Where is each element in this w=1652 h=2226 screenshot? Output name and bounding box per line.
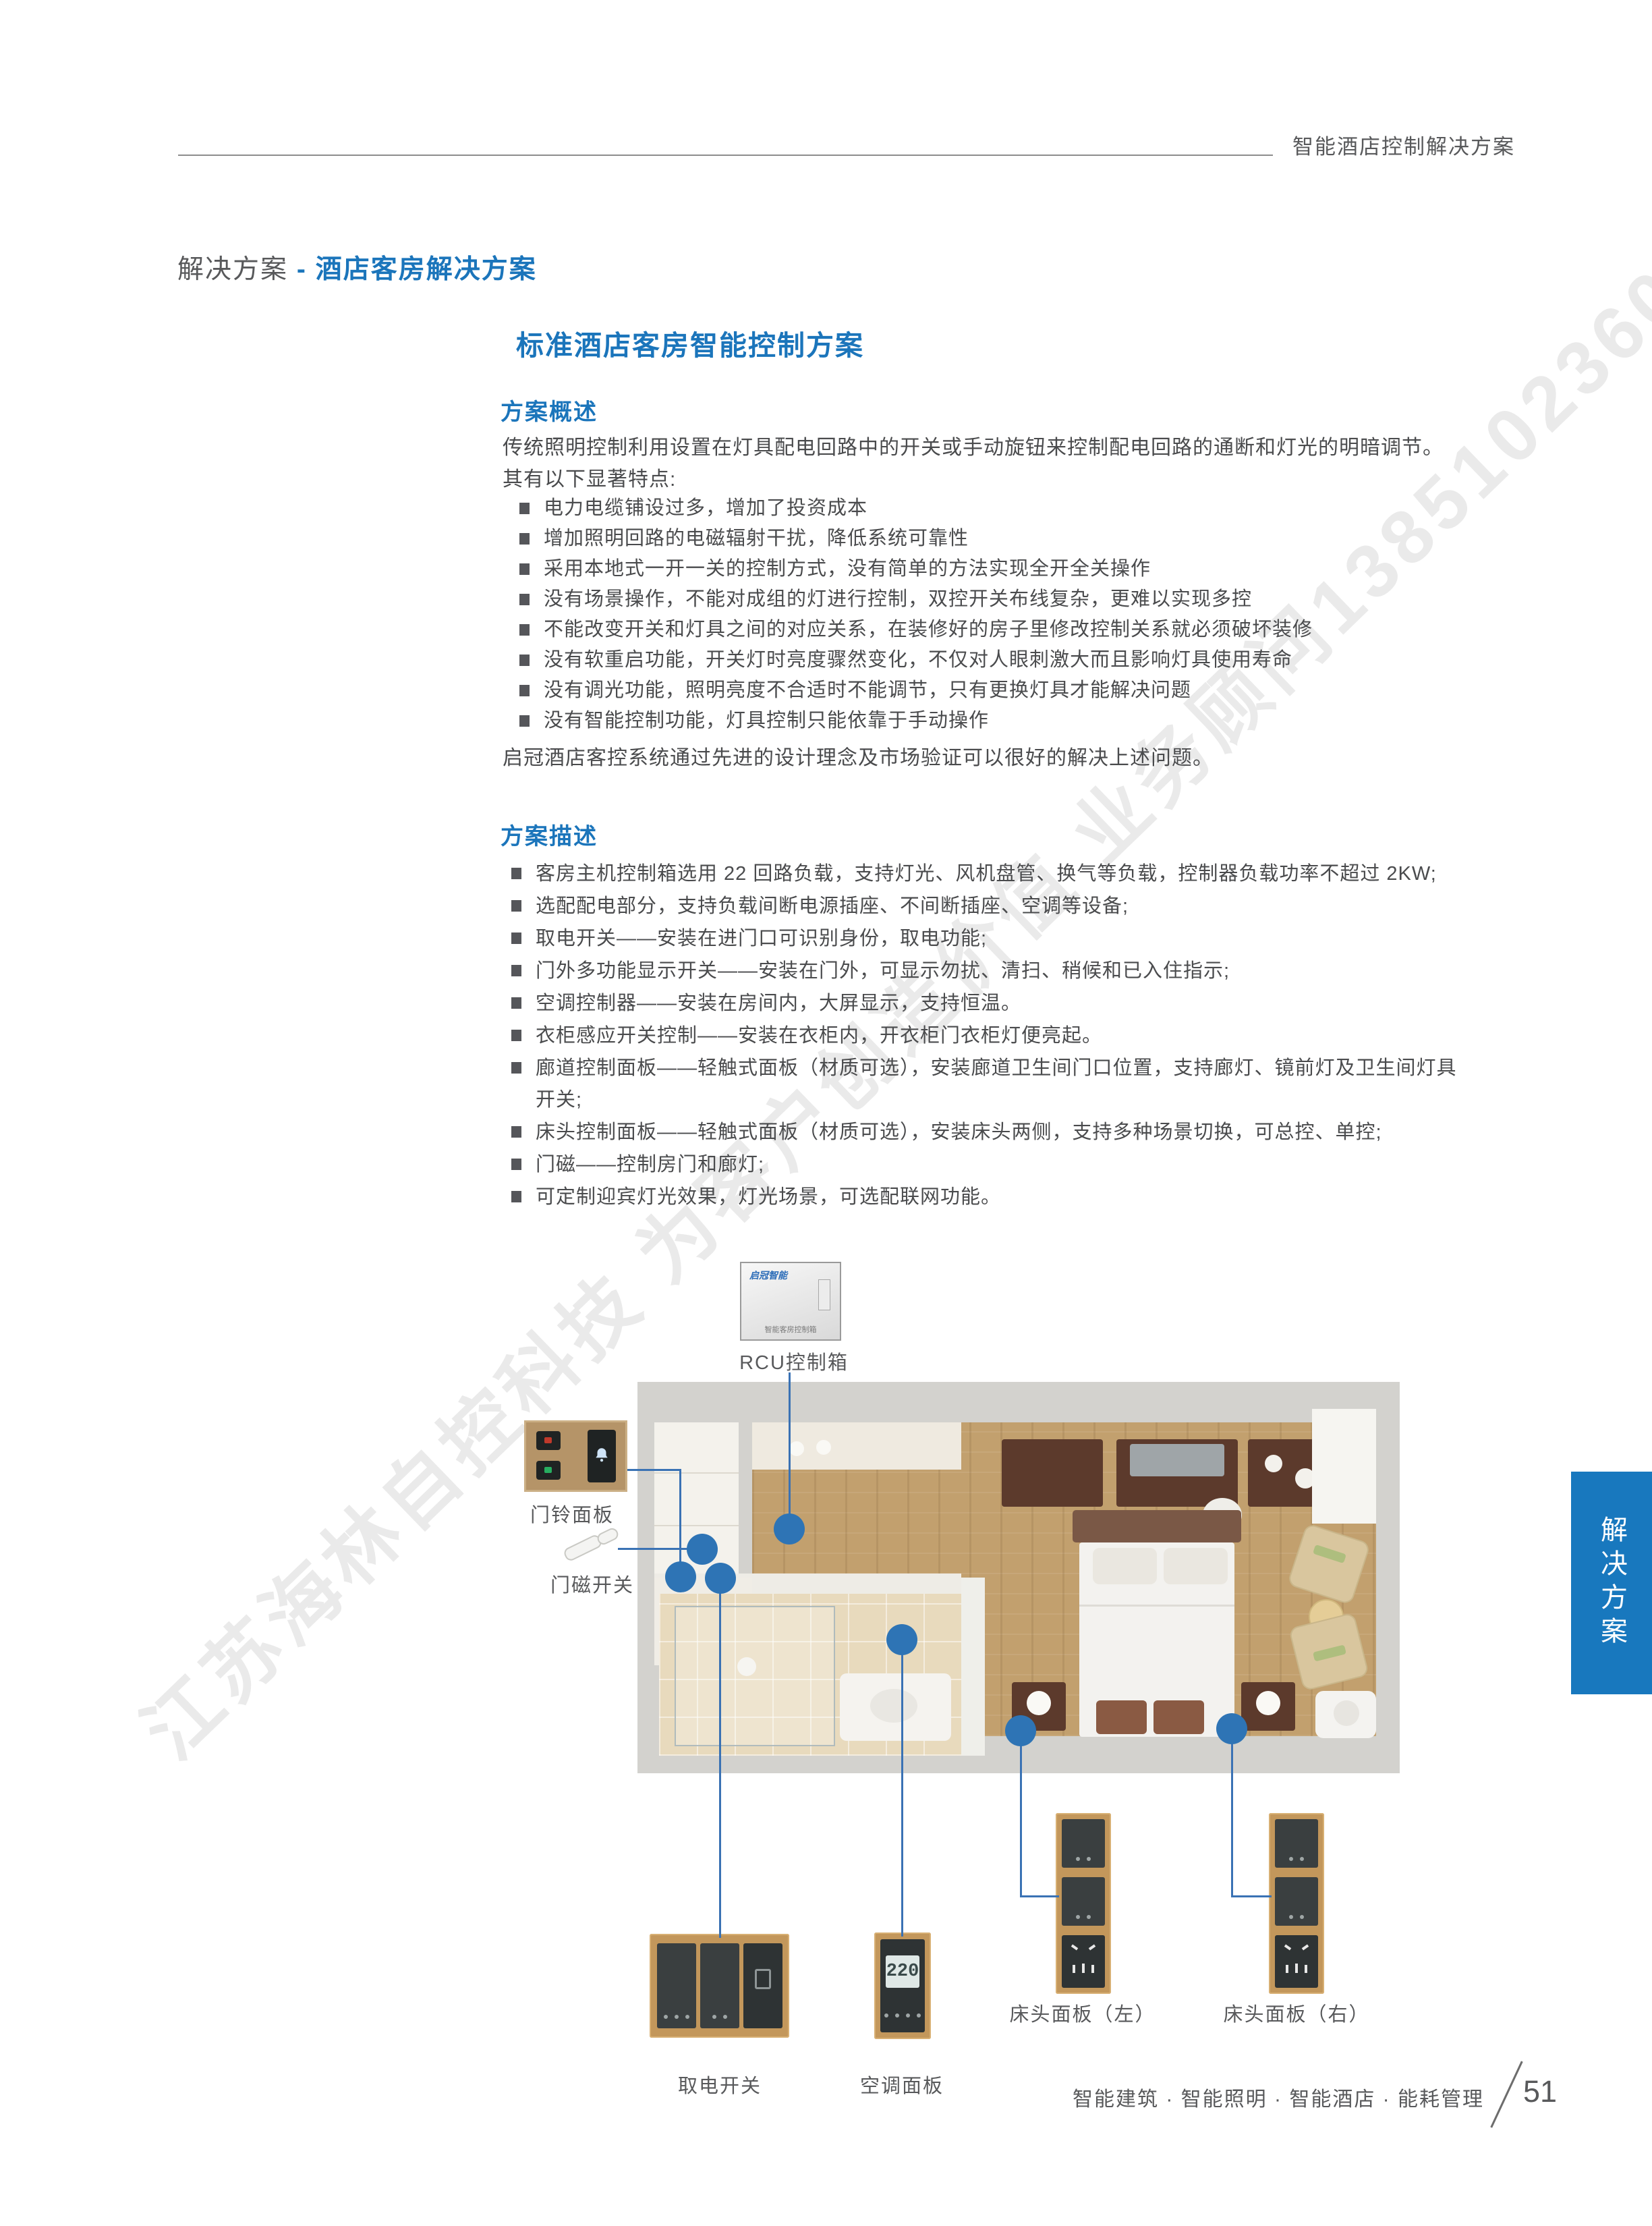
list-item-text: 床头控制面板——轻触式面板（材质可选），安装床头两侧，支持多种场景切换，可总控、… bbox=[536, 1121, 1382, 1143]
list-item-text: 取电开关——安装在进门口可识别身份，取电功能; bbox=[536, 928, 987, 949]
list-item-text: 没有智能控制功能，灯具控制只能依靠于手动操作 bbox=[544, 710, 989, 731]
overview-heading: 方案概述 bbox=[501, 393, 598, 426]
chapter-tab-solutions: 解决方案 bbox=[1571, 1472, 1652, 1694]
connector-bedside-left-v bbox=[1020, 1731, 1022, 1897]
bullet-square-icon bbox=[519, 624, 530, 636]
breadcrumb-prefix: 解决方案 bbox=[177, 255, 288, 284]
connector-bedside-right-v bbox=[1231, 1729, 1233, 1897]
overview-intro: 传统照明控制利用设置在灯具配电回路中的开关或手动旋钮来控制配电回路的通断和灯光的… bbox=[503, 432, 1504, 495]
breadcrumb-current: 酒店客房解决方案 bbox=[316, 255, 537, 284]
corner-vanity-basin bbox=[1334, 1700, 1359, 1726]
shower-enclosure bbox=[675, 1606, 835, 1746]
counter-sink bbox=[789, 1441, 804, 1456]
footer-slash-divider bbox=[1490, 2061, 1522, 2127]
list-item-text: 不能改变开关和灯具之间的对应关系，在装修好的房子里修改控制关系就必须破坏装修 bbox=[544, 619, 1313, 640]
foot-bench-cushion bbox=[1096, 1700, 1147, 1734]
list-item: 不能改变开关和灯具之间的对应关系，在装修好的房子里修改控制关系就必须破坏装修 bbox=[518, 619, 1489, 640]
power-switch-module bbox=[657, 1943, 696, 2028]
list-item-text: 廊道控制面板——轻触式面板（材质可选），安装廊道卫生间门口位置，支持廊灯、镜前灯… bbox=[536, 1057, 1457, 1111]
list-item: 客房主机控制箱选用 22 回路负载，支持灯光、风机盘管、换气等负载，控制器负载功… bbox=[510, 858, 1468, 890]
rcu-latch-icon bbox=[818, 1279, 830, 1310]
closet-shelf-line bbox=[654, 1472, 739, 1474]
bullet-square-icon bbox=[519, 533, 530, 545]
tv-screen bbox=[1130, 1444, 1224, 1476]
list-item-text: 衣柜感应开关控制——安装在衣柜内，开衣柜门衣柜灯便亮起。 bbox=[536, 1025, 1102, 1047]
list-item: 没有软重启功能，开关灯时亮度骤然变化，不仅对人眼刺激大而且影响灯具使用寿命 bbox=[518, 650, 1489, 671]
list-item-text: 电力电缆铺设过多，增加了投资成本 bbox=[544, 497, 867, 519]
bedside-socket-module bbox=[1062, 1935, 1105, 1988]
doorbell-mur-module bbox=[536, 1461, 561, 1480]
list-item: 没有场景操作，不能对成组的灯进行控制，双控开关布线复杂，更难以实现多控 bbox=[518, 589, 1489, 610]
key-card-module bbox=[743, 1943, 782, 2028]
rcu-label: RCU控制箱 bbox=[727, 1347, 861, 1375]
marker-dot-ac bbox=[886, 1624, 917, 1655]
doorbell-dnd-module bbox=[536, 1431, 561, 1450]
bullet-square-icon bbox=[511, 1191, 521, 1202]
header-rule bbox=[178, 155, 1273, 156]
connector-doorbell-v bbox=[679, 1469, 681, 1577]
list-item-text: 采用本地式一开一关的控制方式，没有简单的方法实现全开全关操作 bbox=[544, 558, 1151, 580]
list-item-text: 增加照明回路的电磁辐射干扰，降低系统可靠性 bbox=[544, 528, 969, 549]
footer-slogan: 智能建筑 · 智能照明 · 智能酒店 · 能耗管理 bbox=[938, 2082, 1484, 2112]
connector-rcu bbox=[789, 1372, 791, 1529]
bullet-square-icon bbox=[519, 715, 530, 727]
bedside-panel-left-image bbox=[1056, 1813, 1111, 1994]
list-item-text: 没有调光功能，照明亮度不合适时不能调节，只有更换灯具才能解决问题 bbox=[544, 679, 1191, 701]
list-item-text: 选配配电部分，支持负载间断电源插座、不间断插座、空调等设备; bbox=[536, 895, 1129, 917]
power-switch-panel-image bbox=[650, 1934, 789, 2038]
marker-dot-bedside-right bbox=[1216, 1713, 1247, 1744]
doorbell-panel-image bbox=[524, 1420, 627, 1492]
bullet-square-icon bbox=[519, 503, 530, 514]
overview-intro-line1: 传统照明控制利用设置在灯具配电回路中的开关或手动旋钮来控制配电回路的通断和灯光的… bbox=[503, 432, 1504, 464]
bullet-square-icon bbox=[511, 997, 521, 1009]
vanity-basin bbox=[870, 1689, 917, 1723]
ac-lcd-display: 220 bbox=[886, 1955, 919, 1988]
list-item: 没有智能控制功能，灯具控制只能依靠于手动操作 bbox=[518, 711, 1489, 731]
connector-bedside-left-h bbox=[1020, 1895, 1059, 1897]
kitchenette-counter bbox=[752, 1422, 961, 1470]
partition-wall bbox=[961, 1578, 985, 1756]
room-floor-plan bbox=[637, 1382, 1400, 1773]
rcu-control-box-image: 启冠智能 智能客房控制箱 bbox=[740, 1262, 841, 1341]
bedside-socket-module bbox=[1275, 1935, 1318, 1988]
overview-intro-line2: 其有以下显著特点: bbox=[503, 464, 1504, 495]
pillow bbox=[1164, 1548, 1228, 1584]
list-item: 选配配电部分，支持负载间断电源插座、不间断插座、空调等设备; bbox=[510, 891, 1468, 922]
power-switch-module bbox=[700, 1943, 739, 2028]
breadcrumb: 解决方案 - 酒店客房解决方案 bbox=[177, 248, 537, 286]
pillow bbox=[1093, 1548, 1157, 1584]
list-item: 廊道控制面板——轻触式面板（材质可选），安装廊道卫生间门口位置，支持廊灯、镜前灯… bbox=[510, 1053, 1468, 1116]
connector-ac-panel bbox=[901, 1640, 903, 1937]
shower-drain bbox=[737, 1657, 756, 1676]
bedside-switch-module bbox=[1062, 1819, 1105, 1868]
table-dish bbox=[1265, 1455, 1282, 1472]
list-item: 增加照明回路的电磁辐射干扰，降低系统可靠性 bbox=[518, 528, 1489, 549]
bullet-square-icon bbox=[511, 1126, 521, 1138]
list-item: 门外多功能显示开关——安装在门外，可显示勿扰、清扫、稍候和已入住指示; bbox=[510, 955, 1468, 987]
window-light bbox=[1312, 1409, 1376, 1524]
bullet-square-icon bbox=[511, 900, 521, 912]
bedside-right-label: 床头面板（右） bbox=[1219, 1999, 1374, 2027]
list-item-text: 门外多功能显示开关——安装在门外，可显示勿扰、清扫、稍候和已入住指示; bbox=[536, 960, 1230, 982]
page-number: 51 bbox=[1523, 2074, 1557, 2109]
marker-dot-bedside-left bbox=[1005, 1715, 1036, 1746]
overview-bullet-list: 电力电缆铺设过多，增加了投资成本 增加照明回路的电磁辐射干扰，降低系统可靠性 采… bbox=[518, 498, 1489, 741]
bedside-left-label: 床头面板（左） bbox=[1005, 1999, 1160, 2027]
list-item-text: 门磁——控制房门和廊灯; bbox=[536, 1154, 764, 1175]
card-slot-icon bbox=[755, 1969, 771, 1989]
list-item-text: 空调控制器——安装在房间内，大屏显示，支持恒温。 bbox=[536, 993, 1021, 1014]
list-item: 衣柜感应开关控制——安装在衣柜内，开衣柜门衣柜灯便亮起。 bbox=[510, 1020, 1468, 1052]
marker-dot-doorbell bbox=[665, 1561, 696, 1592]
marker-dot-magnet bbox=[687, 1534, 718, 1565]
door-magnet-image bbox=[562, 1524, 623, 1565]
connector-bedside-right-h bbox=[1231, 1895, 1272, 1897]
ac-panel-module: 220 bbox=[880, 1939, 925, 2032]
list-item-text: 没有软重启功能，开关灯时亮度骤然变化，不仅对人眼刺激大而且影响灯具使用寿命 bbox=[544, 649, 1292, 671]
list-item: 可定制迎宾灯光效果，灯光场景，可选配联网功能。 bbox=[510, 1181, 1468, 1213]
list-item: 取电开关——安装在进门口可识别身份，取电功能; bbox=[510, 923, 1468, 955]
bullet-square-icon bbox=[511, 1159, 521, 1170]
bullet-square-icon bbox=[519, 655, 530, 666]
bullet-square-icon bbox=[511, 1030, 521, 1041]
list-item-text: 可定制迎宾灯光效果，灯光场景，可选配联网功能。 bbox=[536, 1186, 1001, 1208]
list-item: 门磁——控制房门和廊灯; bbox=[510, 1149, 1468, 1181]
connector-power-switch bbox=[719, 1578, 721, 1938]
breadcrumb-separator: - bbox=[288, 255, 316, 284]
list-item: 床头控制面板——轻触式面板（材质可选），安装床头两侧，支持多种场景切换，可总控、… bbox=[510, 1117, 1468, 1148]
list-item: 采用本地式一开一关的控制方式，没有简单的方法实现全开全关操作 bbox=[518, 559, 1489, 580]
connector-doorbell-h bbox=[627, 1469, 681, 1471]
bullet-square-icon bbox=[511, 868, 521, 879]
bed-headboard bbox=[1073, 1510, 1241, 1542]
closet-shelf-line bbox=[654, 1525, 739, 1526]
header-title: 智能酒店控制解决方案 bbox=[1147, 130, 1515, 160]
bell-icon bbox=[593, 1446, 610, 1464]
rcu-box-text: 智能客房控制箱 bbox=[741, 1324, 840, 1335]
nightstand-lamp bbox=[1027, 1691, 1051, 1715]
list-item-text: 客房主机控制箱选用 22 回路负载，支持灯光、风机盘管、换气等负载，控制器负载功… bbox=[536, 863, 1437, 885]
bedside-switch-module bbox=[1275, 1819, 1318, 1868]
doorbell-bell-module bbox=[588, 1430, 616, 1482]
bullet-square-icon bbox=[519, 685, 530, 696]
bullet-square-icon bbox=[519, 594, 530, 605]
bedside-panel-right-image bbox=[1269, 1813, 1324, 1994]
list-item: 空调控制器——安装在房间内，大屏显示，支持恒温。 bbox=[510, 988, 1468, 1020]
bullet-square-icon bbox=[511, 933, 521, 944]
list-item-text: 没有场景操作，不能对成组的灯进行控制，双控开关布线复杂，更难以实现多控 bbox=[544, 588, 1252, 610]
sheet-fold-line bbox=[1079, 1605, 1234, 1607]
bullet-square-icon bbox=[519, 563, 530, 575]
bullet-square-icon bbox=[511, 1062, 521, 1074]
marker-dot-power-switch bbox=[705, 1563, 736, 1594]
rcu-brand-logo: 启冠智能 bbox=[749, 1269, 787, 1282]
counter-sink bbox=[816, 1440, 831, 1455]
ac-panel-image: 220 bbox=[874, 1932, 931, 2039]
foot-bench-cushion bbox=[1153, 1700, 1204, 1734]
description-bullet-list: 客房主机控制箱选用 22 回路负载，支持灯光、风机盘管、换气等负载，控制器负载功… bbox=[510, 858, 1468, 1214]
power-switch-label: 取电开关 bbox=[652, 2070, 787, 2098]
list-item: 电力电缆铺设过多，增加了投资成本 bbox=[518, 498, 1489, 519]
description-heading: 方案描述 bbox=[501, 818, 598, 851]
overview-closing: 启冠酒店客控系统通过先进的设计理念及市场验证可以很好的解决上述问题。 bbox=[503, 741, 1214, 771]
door-magnet-label: 门磁开关 bbox=[532, 1569, 653, 1598]
bedside-switch-module bbox=[1062, 1877, 1105, 1926]
bullet-square-icon bbox=[511, 965, 521, 976]
list-item: 没有调光功能，照明亮度不合适时不能调节，只有更换灯具才能解决问题 bbox=[518, 680, 1489, 701]
page-title: 标准酒店客房智能控制方案 bbox=[516, 323, 864, 363]
bedside-switch-module bbox=[1275, 1877, 1318, 1926]
nightstand-lamp bbox=[1256, 1691, 1280, 1715]
marker-dot-rcu bbox=[774, 1513, 805, 1545]
minibar-cabinet bbox=[1002, 1439, 1103, 1507]
chapter-tab-label: 解决方案 bbox=[1592, 1515, 1631, 1650]
